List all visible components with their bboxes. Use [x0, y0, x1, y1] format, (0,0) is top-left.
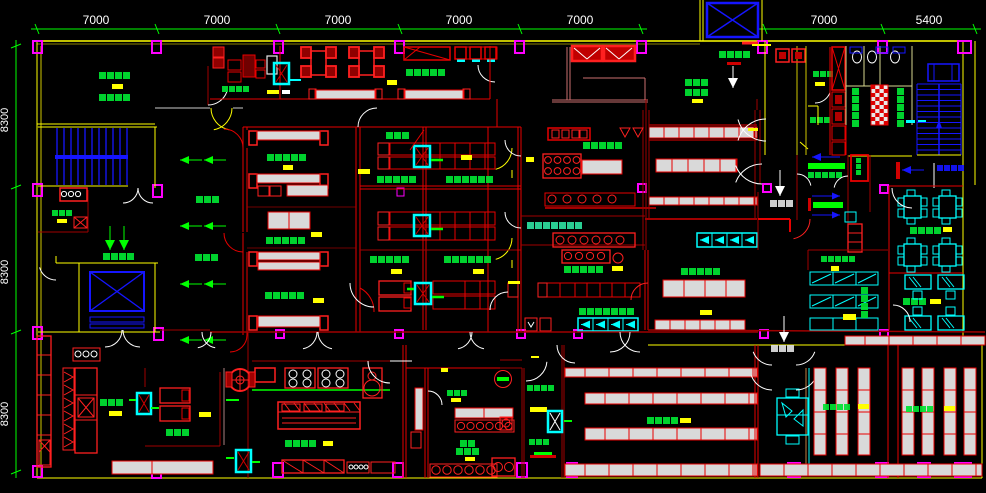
svg-text:7000: 7000	[811, 13, 838, 27]
svg-text:8300: 8300	[0, 402, 11, 426]
svg-text:5400: 5400	[916, 13, 943, 27]
svg-text:7000: 7000	[204, 13, 231, 27]
svg-text:7000: 7000	[446, 13, 473, 27]
svg-text:7000: 7000	[567, 13, 594, 27]
svg-text:7000: 7000	[325, 13, 352, 27]
svg-text:7000: 7000	[83, 13, 110, 27]
svg-text:8300: 8300	[0, 108, 11, 132]
svg-text:8300: 8300	[0, 260, 11, 284]
